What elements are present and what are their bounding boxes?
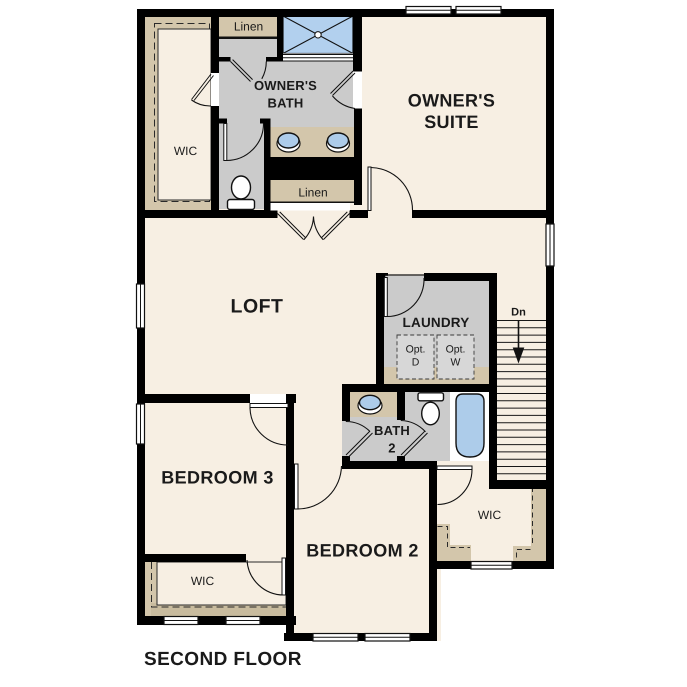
- svg-text:2: 2: [388, 441, 395, 456]
- svg-text:Opt.: Opt.: [406, 344, 426, 356]
- svg-text:OWNER'S: OWNER'S: [408, 91, 495, 111]
- svg-text:BATH: BATH: [268, 96, 304, 111]
- svg-text:WIC: WIC: [191, 574, 215, 588]
- svg-text:SUITE: SUITE: [424, 112, 479, 132]
- svg-text:WIC: WIC: [478, 508, 502, 522]
- svg-text:D: D: [412, 357, 420, 369]
- svg-text:Dn: Dn: [511, 307, 526, 319]
- svg-text:BATH: BATH: [374, 423, 410, 438]
- svg-text:BEDROOM 3: BEDROOM 3: [161, 468, 274, 488]
- svg-text:OWNER'S: OWNER'S: [254, 78, 317, 93]
- svg-text:WIC: WIC: [174, 144, 198, 158]
- svg-text:W: W: [451, 357, 461, 369]
- svg-text:LOFT: LOFT: [231, 296, 284, 318]
- svg-text:BEDROOM 2: BEDROOM 2: [306, 541, 419, 561]
- svg-text:Opt.: Opt.: [446, 344, 466, 356]
- svg-text:Linen: Linen: [298, 186, 327, 200]
- svg-text:LAUNDRY: LAUNDRY: [403, 315, 470, 330]
- svg-text:Linen: Linen: [234, 20, 263, 34]
- svg-text:SECOND FLOOR: SECOND FLOOR: [144, 649, 302, 670]
